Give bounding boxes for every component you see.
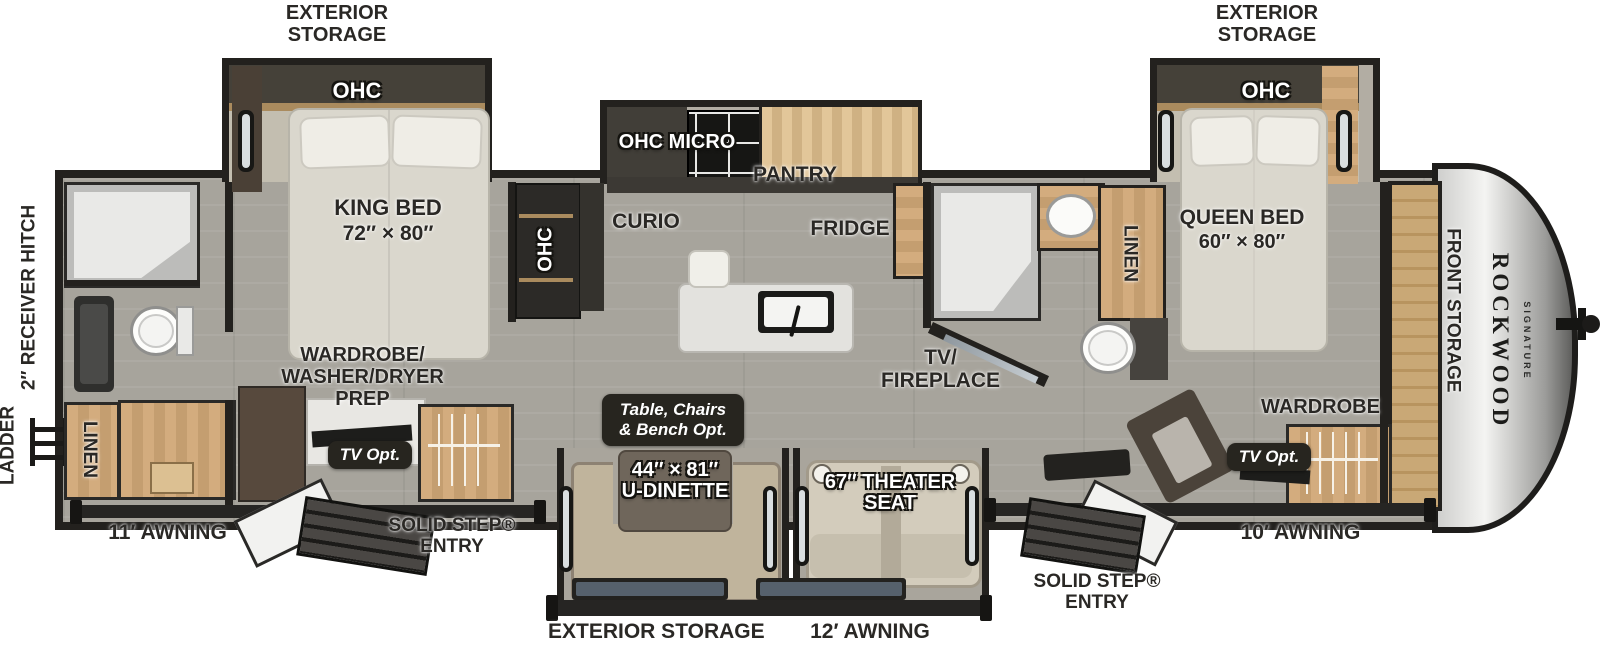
window: [1336, 110, 1352, 172]
theater-seat-line: SEAT: [800, 493, 980, 514]
label-front-storage: FRONT STORAGE: [1442, 200, 1463, 420]
dinette-name: U-DINETTE: [598, 481, 752, 502]
label-wardrobe-washer-dryer: WARDROBE/ WASHER/DRYER PREP: [245, 344, 480, 410]
label-receiver-hitch: 2″ RECEIVER HITCH: [20, 182, 41, 412]
hitch-coupler: [1582, 315, 1600, 333]
label-exterior-storage-top-right: EXTERIOR STORAGE: [1192, 2, 1342, 46]
label-ohc-micro: OHC MICRO: [597, 132, 757, 153]
solid-step-line: SOLID STEP®: [382, 516, 522, 537]
window: [238, 110, 254, 172]
tv-fireplace-line: TV/: [868, 346, 1013, 369]
label-linen-front: LINEN: [1119, 198, 1140, 308]
wall: [923, 182, 931, 328]
label-queen-bed: QUEEN BED 60″ × 80″: [1152, 206, 1332, 253]
rear-shower-pan: [74, 192, 190, 278]
ladder-icon: [30, 418, 68, 466]
queen-bed-size: 60″ × 80″: [1152, 231, 1332, 253]
label-king-bed: KING BED 72″ × 80″: [288, 196, 488, 245]
solid-step-line: ENTRY: [1027, 593, 1167, 614]
window: [1158, 110, 1174, 172]
label-curio: CURIO: [586, 210, 706, 233]
awning-bracket: [984, 498, 996, 522]
label-tv-fireplace: TV/ FIREPLACE: [868, 346, 1013, 392]
curio-cabinet: [580, 183, 604, 311]
table-opt-lines: Table, Chairs & Bench Opt.: [619, 400, 727, 441]
rear-shower: [64, 182, 200, 288]
awning-bracket: [546, 595, 558, 621]
label-awning-12: 12′ AWNING: [800, 620, 940, 643]
wardrobe-prep-line: WASHER/DRYER: [245, 366, 480, 388]
awning-bracket: [534, 500, 546, 524]
label-exterior-storage-bottom: EXTERIOR STORAGE: [548, 620, 753, 643]
pillow: [1189, 115, 1255, 167]
brand-logo: ROCKWOOD: [1487, 251, 1513, 431]
storage-mat: [756, 578, 906, 600]
wardrobe-hangers: [1306, 432, 1362, 494]
queen-bed-name: QUEEN BED: [1152, 206, 1332, 229]
label-ladder: LADDER: [0, 395, 19, 495]
awning-bracket: [1424, 498, 1436, 522]
wardrobe-prep-line: WARDROBE/: [245, 344, 480, 366]
wall: [64, 280, 200, 286]
label-wardrobe: WARDROBE: [1248, 396, 1393, 418]
label-linen-rear: LINEN: [78, 402, 99, 497]
tv-opt-badge-left: TV Opt.: [328, 441, 412, 469]
dinette-size: 44″ × 81″: [598, 460, 752, 481]
theater-seat-line: 67″ THEATER: [800, 472, 980, 493]
pillow: [391, 114, 483, 169]
mid-shower-pan: [941, 193, 1031, 311]
wardrobe-hangers: [438, 414, 490, 486]
step-stool: [150, 462, 194, 494]
wall: [1380, 182, 1388, 506]
brand-series: SIGNATURE: [1520, 281, 1532, 401]
table-chairs-opt-badge: Table, Chairs & Bench Opt.: [602, 394, 744, 446]
wall: [225, 400, 233, 506]
bar-stool: [688, 250, 730, 288]
floorplan-scene: EXTERIOR STORAGE EXTERIOR STORAGE KING B…: [0, 0, 1600, 650]
tv-opt-badge-right: TV Opt.: [1227, 443, 1311, 471]
solid-step-line: ENTRY: [382, 537, 522, 558]
wall: [225, 182, 233, 332]
window: [559, 486, 573, 572]
rear-toilet-tank: [176, 306, 194, 356]
pillow: [1255, 115, 1321, 167]
mid-toilet: [1080, 322, 1136, 374]
tv-fireplace-line: FIREPLACE: [868, 369, 1013, 392]
label-exterior-storage-top-left: EXTERIOR STORAGE: [262, 2, 412, 46]
mid-shower: [931, 183, 1041, 321]
label-theater-seat: 67″ THEATER SEAT: [800, 472, 980, 514]
pillow: [299, 114, 391, 169]
table-opt-line: & Bench Opt.: [619, 420, 727, 440]
mid-bath-sink: [1046, 194, 1096, 238]
solid-step-line: SOLID STEP®: [1027, 572, 1167, 593]
king-bed-size: 72″ × 80″: [288, 222, 488, 245]
wardrobe-prep-line: PREP: [245, 388, 480, 410]
storage-mat: [572, 578, 728, 600]
king-bed-name: KING BED: [288, 196, 488, 220]
rear-toilet: [130, 306, 182, 356]
label-ohc-vertical: OHC: [536, 195, 557, 305]
rear-bath-cabinet-door: [80, 304, 108, 384]
label-ohc-queen: OHC: [1221, 79, 1311, 102]
label-ohc-king: OHC: [312, 79, 402, 102]
label-solid-step-left: SOLID STEP® ENTRY: [382, 516, 522, 558]
label-solid-step-right: SOLID STEP® ENTRY: [1027, 572, 1167, 614]
label-fridge: FRIDGE: [790, 217, 910, 240]
awning-bracket: [70, 500, 82, 524]
window: [763, 486, 777, 572]
label-u-dinette: 44″ × 81″ U-DINETTE: [598, 460, 752, 502]
label-awning-10: 10′ AWNING: [1228, 521, 1373, 544]
label-awning-11: 11′ AWNING: [95, 521, 240, 544]
label-pantry: PANTRY: [735, 163, 855, 186]
table-opt-line: Table, Chairs: [619, 400, 727, 420]
awning-bracket: [980, 595, 992, 621]
front-storage-compartment: [1388, 181, 1442, 511]
awning-rail-bottom: [550, 600, 988, 616]
